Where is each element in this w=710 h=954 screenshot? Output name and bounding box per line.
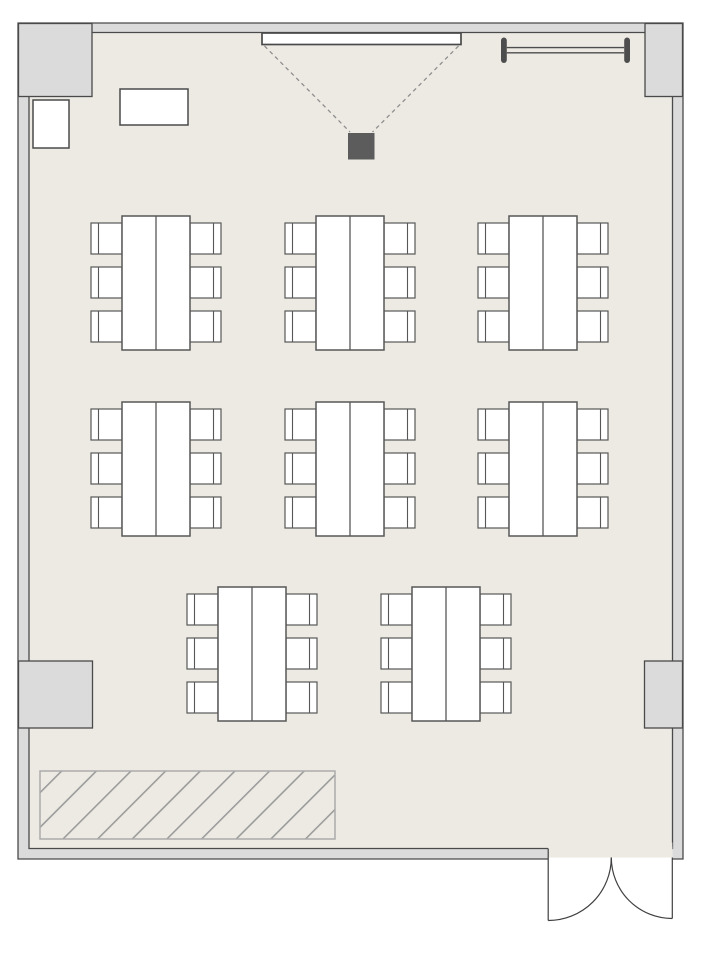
cabinet-wide[interactable] [120, 89, 188, 125]
pillar-top-right [645, 24, 683, 97]
chair[interactable] [91, 497, 122, 528]
pillar-mid-left [19, 661, 93, 728]
chair[interactable] [381, 682, 412, 713]
chair[interactable] [91, 311, 122, 342]
chair[interactable] [384, 267, 415, 298]
chair[interactable] [190, 497, 221, 528]
table-group-5[interactable] [285, 402, 415, 536]
table-group-1[interactable] [91, 216, 221, 350]
chair[interactable] [577, 223, 608, 254]
chair[interactable] [286, 594, 317, 625]
chair[interactable] [91, 267, 122, 298]
pillar-top-left [19, 24, 93, 97]
table-group-8[interactable] [381, 587, 511, 721]
table-group-3[interactable] [478, 216, 608, 350]
chair[interactable] [187, 638, 218, 669]
chair[interactable] [480, 682, 511, 713]
table-group-4[interactable] [91, 402, 221, 536]
chair[interactable] [577, 311, 608, 342]
chair[interactable] [285, 311, 316, 342]
door-opening-floor [548, 843, 672, 858]
chair[interactable] [480, 594, 511, 625]
chair[interactable] [286, 682, 317, 713]
chair[interactable] [577, 453, 608, 484]
pillar-mid-right [645, 661, 683, 728]
chair[interactable] [285, 453, 316, 484]
chair[interactable] [285, 267, 316, 298]
chair[interactable] [478, 223, 509, 254]
chair[interactable] [478, 311, 509, 342]
chair[interactable] [478, 453, 509, 484]
chair[interactable] [384, 311, 415, 342]
table-group-6[interactable] [478, 402, 608, 536]
hatched-storage-zone [40, 771, 335, 839]
coat-rail-post-1 [501, 38, 507, 64]
ceiling-projector[interactable] [348, 133, 375, 160]
chair[interactable] [577, 267, 608, 298]
chair[interactable] [478, 497, 509, 528]
table-group-7[interactable] [187, 587, 317, 721]
chair[interactable] [91, 453, 122, 484]
projection-screen[interactable] [262, 33, 461, 45]
chair[interactable] [190, 311, 221, 342]
floor-plan-page [0, 0, 710, 954]
chair[interactable] [577, 497, 608, 528]
chair[interactable] [190, 453, 221, 484]
chair[interactable] [381, 638, 412, 669]
chair[interactable] [187, 594, 218, 625]
chair[interactable] [478, 409, 509, 440]
table-group-2[interactable] [285, 216, 415, 350]
chair[interactable] [478, 267, 509, 298]
chair[interactable] [285, 409, 316, 440]
chair[interactable] [285, 223, 316, 254]
chair[interactable] [285, 497, 316, 528]
chair[interactable] [384, 497, 415, 528]
door-right-swing-arc [611, 858, 672, 919]
chair[interactable] [381, 594, 412, 625]
chair[interactable] [91, 409, 122, 440]
chair[interactable] [190, 223, 221, 254]
coat-rail-post-2 [624, 38, 630, 64]
door-left-swing-arc [548, 858, 611, 921]
chair[interactable] [190, 409, 221, 440]
cabinet-small[interactable] [33, 100, 69, 148]
chair[interactable] [384, 453, 415, 484]
chair[interactable] [384, 223, 415, 254]
chair[interactable] [577, 409, 608, 440]
chair[interactable] [190, 267, 221, 298]
chair[interactable] [91, 223, 122, 254]
floor-plan-svg [0, 0, 710, 954]
chair[interactable] [286, 638, 317, 669]
chair[interactable] [480, 638, 511, 669]
chair[interactable] [187, 682, 218, 713]
chair[interactable] [384, 409, 415, 440]
